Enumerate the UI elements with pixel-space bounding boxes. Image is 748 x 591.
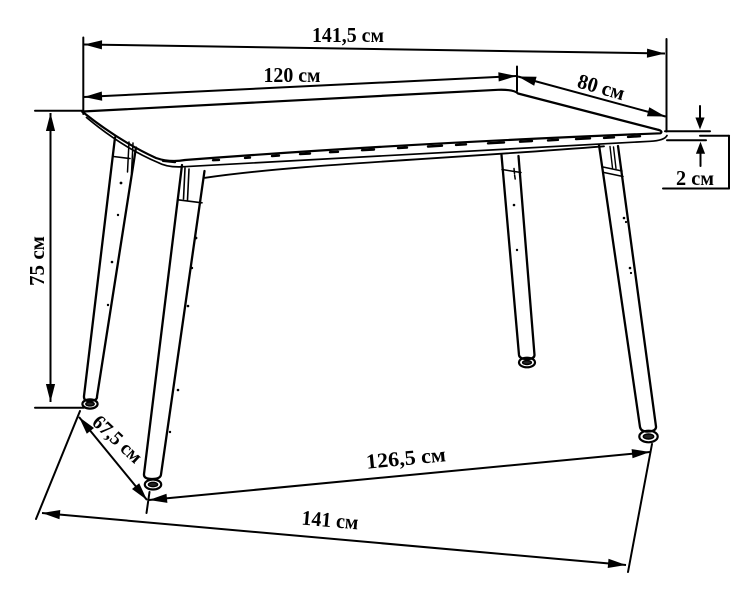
svg-text:141,5 см: 141,5 см xyxy=(312,23,384,47)
svg-text:120 см: 120 см xyxy=(264,63,321,87)
svg-text:141 см: 141 см xyxy=(301,506,360,535)
svg-text:75 см: 75 см xyxy=(25,236,49,286)
svg-text:2 см: 2 см xyxy=(676,166,714,190)
